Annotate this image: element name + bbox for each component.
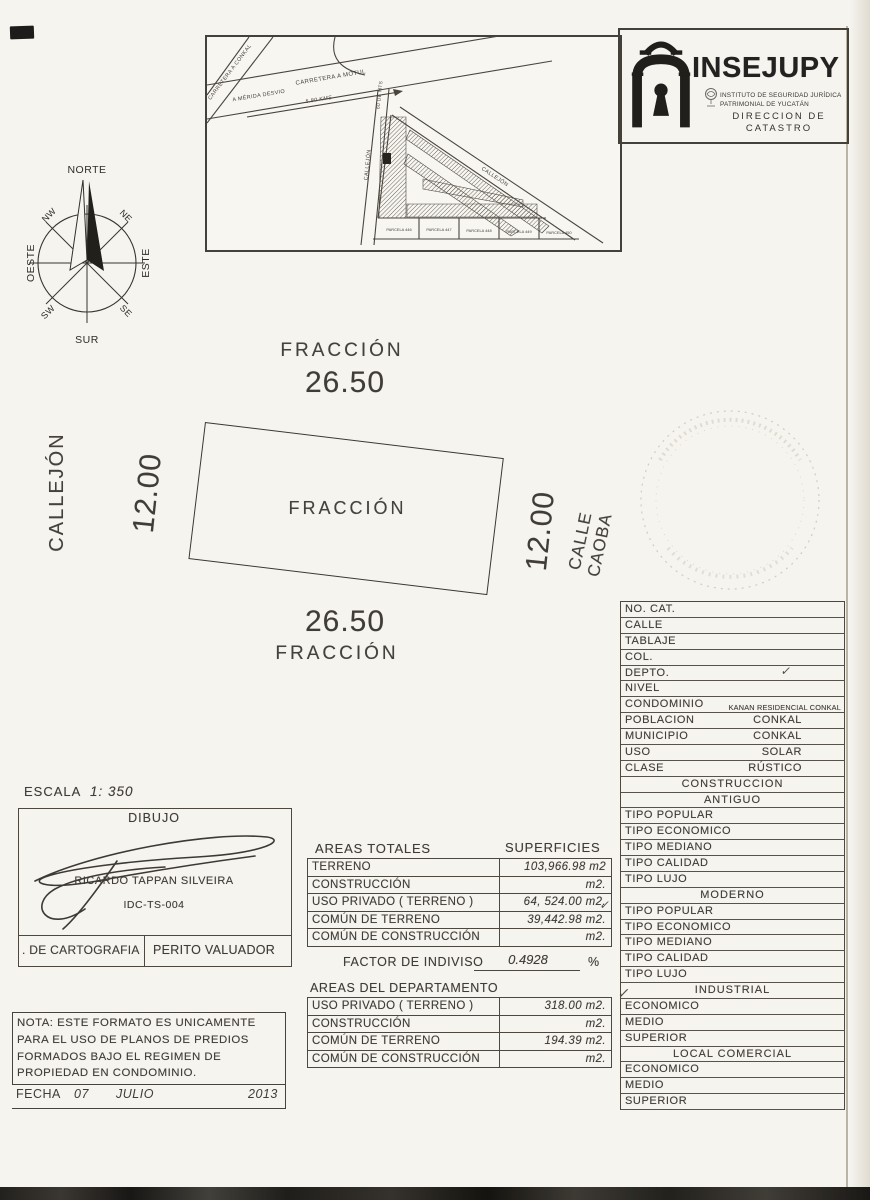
areas-row-value: m2. [500,929,611,946]
catastro-row-label: TABLAJE [625,635,676,647]
catastro-row-label: CLASE [625,762,664,774]
catastro-row-label: NIVEL [625,682,660,694]
catastro-row-label: ECONOMICO [625,1000,699,1012]
factor-indiviso-label: FACTOR DE INDIVISO [343,955,483,969]
areas-totales-table: TERRENO103,966.98 m2CONSTRUCCIÓNm2.USO P… [307,858,612,947]
catastro-row: NO. CAT. [621,602,844,618]
compass-label-southeast: SE [118,303,134,319]
logo-institute-line2: PATRIMONIAL DE YUCATÁN [720,101,845,110]
catastro-row-label: MEDIO [625,1016,664,1028]
catastro-row: POBLACIONCONKAL [621,713,844,729]
location-map-inset: CARRETERA A CONKAL A MÉRIDA DESVIO CARRE… [205,35,622,252]
catastro-row-label: USO [625,746,651,758]
catastro-row: ECONOMICO [621,1062,844,1078]
catastro-row-label: MEDIO [625,1079,664,1091]
map-label-carretera-motul: CARRETERA A MOTUL [295,69,366,87]
fecha-label: FECHA [16,1087,61,1101]
areas-row-label: COMÚN DE CONSTRUCCIÓN [308,929,500,946]
catastro-row: SUPERIOR [621,1094,844,1110]
catastro-row: MEDIO [621,1015,844,1031]
logo-wordmark: INSEJUPY [692,52,839,85]
catastro-row-label: CONSTRUCCION [682,778,784,790]
scanned-cadastral-plan: CARRETERA A CONKAL A MÉRIDA DESVIO CARRE… [0,0,870,1200]
areas-row-value: m2. [500,877,611,894]
areas-row-value: m2. [500,1051,611,1068]
catastro-row: MUNICIPIOCONKAL [621,729,844,745]
logo-direction-line1: DIRECCION DE [720,111,838,123]
faint-stamp [630,400,830,600]
catastro-section-header: LOCAL COMERCIAL [621,1047,844,1063]
compass-rose: NORTE SUR OESTE ESTE NW NE SW SE [20,160,155,350]
dibujo-box: DIBUJO RICARDO TAPPAN SILVEIRA IDC-TS-00… [18,808,292,936]
areas-row-value: 318.00 m2. [500,998,611,1015]
catastro-row: TIPO CALIDAD [621,856,844,872]
areas-depto-title: AREAS DEL DEPARTAMENTO [310,981,498,995]
logo-direction-text: DIRECCION DE CATASTRO [720,111,838,135]
subject-lot-marker [383,153,391,164]
nota-text: NOTA: ESTE FORMATO ES UNICAMENTEPARA EL … [17,1015,281,1082]
areas-row-label: COMÚN DE CONSTRUCCIÓN [308,1051,500,1068]
catastro-table: NO. CAT.CALLETABLAJECOL.DEPTO.✓NIVELCOND… [620,601,845,1110]
catastro-row: CALLE [621,618,844,634]
plot-center-label: FRACCIÓN [275,498,420,519]
catastro-row-label: TIPO CALIDAD [625,857,709,869]
catastro-row: TIPO LUJO [621,967,844,983]
catastro-row: CONDOMINIOKANAN RESIDENCIAL CONKAL [621,697,844,713]
areas-row-value: 39,442.98 m2. [500,912,611,929]
areas-totales-title: AREAS TOTALES [315,841,431,856]
page-edge-shade [850,0,870,1200]
map-label-parcela: PARCELA 449 [506,229,531,234]
nota-line: NOTA: ESTE FORMATO ES UNICAMENTE [17,1015,281,1032]
signature [21,817,286,935]
compass-label-north: NORTE [67,164,106,176]
logo-institute-text: INSTITUTO DE SEGURIDAD JURÍDICA PATRIMON… [720,92,845,109]
catastro-row-label: TIPO MEDIANO [625,841,712,853]
areas-row-label: TERRENO [308,859,500,876]
catastro-row-value: SOLAR [762,745,802,760]
catastro-row: TIPO LUJO [621,872,844,888]
areas-row: COMÚN DE TERRENO39,442.98 m2. [308,912,611,930]
catastro-row: MEDIO [621,1078,844,1094]
map-label-parcela: PARCELA 447 [426,227,451,232]
compass-label-northeast: NE [118,208,135,225]
page-edge-line [846,26,848,1188]
catastro-row-label: TIPO LUJO [625,968,687,980]
areas-row: COMÚN DE CONSTRUCCIÓNm2. [308,1051,611,1069]
catastro-row-label: COL. [625,651,653,663]
map-label-callejon-left: CALLEJÓN [362,149,372,181]
factor-indiviso-value: 0.4928 [480,952,576,967]
catastro-row: SUPERIOR [621,1031,844,1047]
location-map-drawing: CARRETERA A CONKAL A MÉRIDA DESVIO CARRE… [207,37,616,246]
catastro-row: COL. [621,650,844,666]
state-emblem-icon [704,86,718,108]
logo-institute-line1: INSTITUTO DE SEGURIDAD JURÍDICA [720,92,845,101]
areas-row: CONSTRUCCIÓNm2. [308,877,611,895]
plot-west-dimension: 12.00 [128,447,167,540]
catastro-row-label: TIPO CALIDAD [625,952,709,964]
compass-label-northwest: NW [40,206,58,224]
logo-direction-line2: CATASTRO [720,123,838,135]
catastro-row-label: MODERNO [700,889,764,901]
areas-row-value: 103,966.98 m2 [500,859,611,876]
compass-label-west: OESTE [25,244,37,282]
areas-row-value: m2. [500,1016,611,1033]
nota-line: FORMADOS BAJO EL REGIMEN DE [17,1049,281,1066]
cargo-row: . DE CARTOGRAFIA PERITO VALUADOR [18,936,292,967]
areas-row-label: CONSTRUCCIÓN [308,877,500,894]
map-label-parcela: PARCELA 448 [466,228,491,233]
catastro-row: CLASERÚSTICO [621,761,844,777]
map-label-parcela: PARCELA 450 [546,230,572,235]
fecha-month: JULIO [116,1087,154,1101]
areas-row: COMÚN DE CONSTRUCCIÓNm2. [308,929,611,947]
fecha-day: 07 [74,1087,89,1101]
catastro-row-label: TIPO MEDIANO [625,936,712,948]
catastro-row-label: SUPERIOR [625,1095,687,1107]
catastro-row-label: DEPTO. [625,667,669,679]
superficies-title: SUPERFICIES [505,840,600,855]
plot-north-dimension: 26.50 [280,366,410,400]
areas-row: USO PRIVADO ( TERRENO )64, 524.00 m2. [308,894,611,912]
map-label-a-merida: A MÉRIDA DESVIO [232,88,286,104]
catastro-row: NIVEL [621,681,844,697]
areas-row: USO PRIVADO ( TERRENO )318.00 m2. [308,998,611,1016]
catastro-row: TIPO ECONOMICO [621,920,844,936]
scan-bottom-strip [0,1187,870,1200]
catastro-row-label: TIPO ECONOMICO [625,825,731,837]
catastro-row-label: TIPO ECONOMICO [625,921,731,933]
plot-east-dimension: 12.00 [521,485,560,578]
catastro-row-label: INDUSTRIAL [695,984,770,996]
catastro-section-header: CONSTRUCCION [621,777,844,793]
areas-row-label: USO PRIVADO ( TERRENO ) [308,998,500,1015]
compass-label-south: SUR [75,334,99,346]
plot-south-neighbor-label: FRACCIÓN [262,643,412,665]
insejupy-logo-box: INSEJUPY INSTITUTO DE SEGURIDAD JURÍDICA… [618,28,849,144]
scan-artifact-blob [10,26,34,40]
plot-north-neighbor-label: FRACCIÓN [262,340,422,362]
catastro-section-header: ANTIGUO [621,793,844,809]
catastro-row-label: ECONOMICO [625,1063,699,1075]
areas-row-label: USO PRIVADO ( TERRENO ) [308,894,500,911]
areas-row: COMÚN DE TERRENO194.39 m2. [308,1033,611,1051]
catastro-row-label: SUPERIOR [625,1032,687,1044]
catastro-row-label: TIPO LUJO [625,873,687,885]
plot-west-street-label: CALLEJÓN [42,442,72,542]
factor-unit: % [588,955,599,969]
areas-row-label: COMÚN DE TERRENO [308,912,500,929]
plot-south-dimension: 26.50 [285,605,405,639]
catastro-section-header: INDUSTRIAL [621,983,844,999]
escala-label: ESCALA [24,784,81,799]
compass-label-southwest: SW [39,303,57,321]
cargo-right-cell: PERITO VALUADOR [144,936,291,966]
catastro-row: TIPO CALIDAD [621,951,844,967]
catastro-row: TABLAJE [621,634,844,650]
catastro-row: ECONOMICO [621,999,844,1015]
areas-depto-table: USO PRIVADO ( TERRENO )318.00 m2.CONSTRU… [307,997,612,1068]
factor-underline [474,970,580,971]
catastro-row-label: TIPO POPULAR [625,809,714,821]
compass-label-east: ESTE [140,248,152,277]
catastro-row: TIPO MEDIANO [621,840,844,856]
areas-row-label: CONSTRUCCIÓN [308,1016,500,1033]
catastro-row: TIPO MEDIANO [621,935,844,951]
catastro-row-label: MUNICIPIO [625,730,688,742]
checkmark: ✓ [780,664,794,679]
catastro-row-label: TIPO POPULAR [625,905,714,917]
insejupy-arch-logo-icon [630,36,692,132]
nota-line: PARA EL USO DE PLANOS DE PREDIOS [17,1032,281,1049]
catastro-row-label: LOCAL COMERCIAL [673,1048,792,1060]
catastro-row: TIPO POPULAR [621,904,844,920]
areas-row-label: COMÚN DE TERRENO [308,1033,500,1050]
catastro-row: TIPO ECONOMICO [621,824,844,840]
catastro-row-value: RÚSTICO [748,761,802,776]
escala-value: 1: 350 [90,784,134,799]
areas-row-value: 194.39 m2. [500,1033,611,1050]
areas-row-value: 64, 524.00 m2. [500,894,611,911]
nota-line: PROPIEDAD EN CONDOMINIO. [17,1065,281,1082]
catastro-section-header: MODERNO [621,888,844,904]
plot-east-street-label: CALLE CAOBA [564,484,617,603]
cargo-left-cell: . DE CARTOGRAFIA [19,936,144,966]
catastro-row-label: CALLE [625,619,663,631]
fecha-row: FECHA 07 JULIO 2013 [12,1082,286,1109]
compass-needle-white [70,180,87,270]
catastro-row: USOSOLAR [621,745,844,761]
nota-box: NOTA: ESTE FORMATO ES UNICAMENTEPARA EL … [12,1012,286,1085]
areas-row: TERRENO103,966.98 m2 [308,859,611,877]
compass-needle-black [87,181,104,271]
catastro-row-value: CONKAL [753,713,802,728]
areas-row: CONSTRUCCIÓNm2. [308,1016,611,1034]
catastro-row-label: NO. CAT. [625,603,675,615]
catastro-row-label: POBLACION [625,714,695,726]
catastro-row-label: ANTIGUO [704,794,761,806]
fecha-year: 2013 [248,1087,278,1101]
map-label-parcela: PARCELA 446 [386,227,411,232]
catastro-row-label: CONDOMINIO [625,698,704,710]
catastro-row-value: CONKAL [753,729,802,744]
catastro-row: TIPO POPULAR [621,808,844,824]
catastro-row: DEPTO.✓ [621,666,844,682]
